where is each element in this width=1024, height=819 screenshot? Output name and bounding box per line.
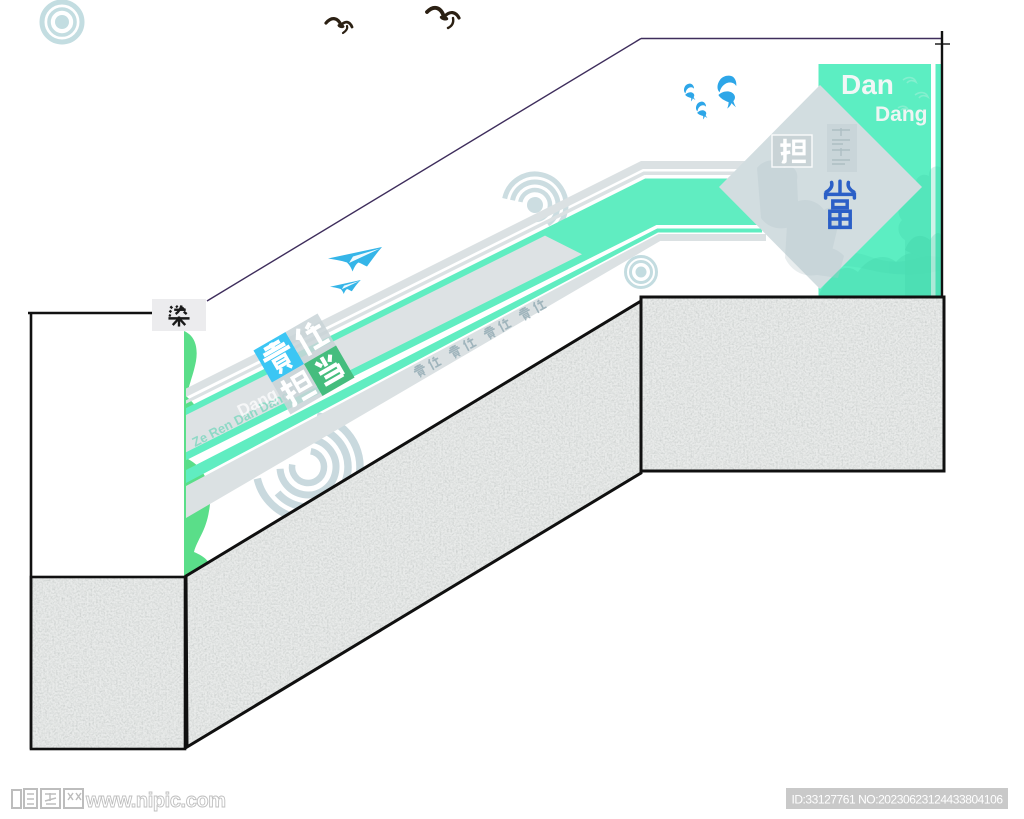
svg-text:www.nipic.com: www.nipic.com	[85, 790, 226, 812]
svg-text:ID:33127761 NO:202306231244338: ID:33127761 NO:20230623124433804106	[791, 793, 1003, 807]
svg-text:Dan: Dan	[841, 69, 894, 100]
svg-text:Dang: Dang	[875, 103, 928, 126]
